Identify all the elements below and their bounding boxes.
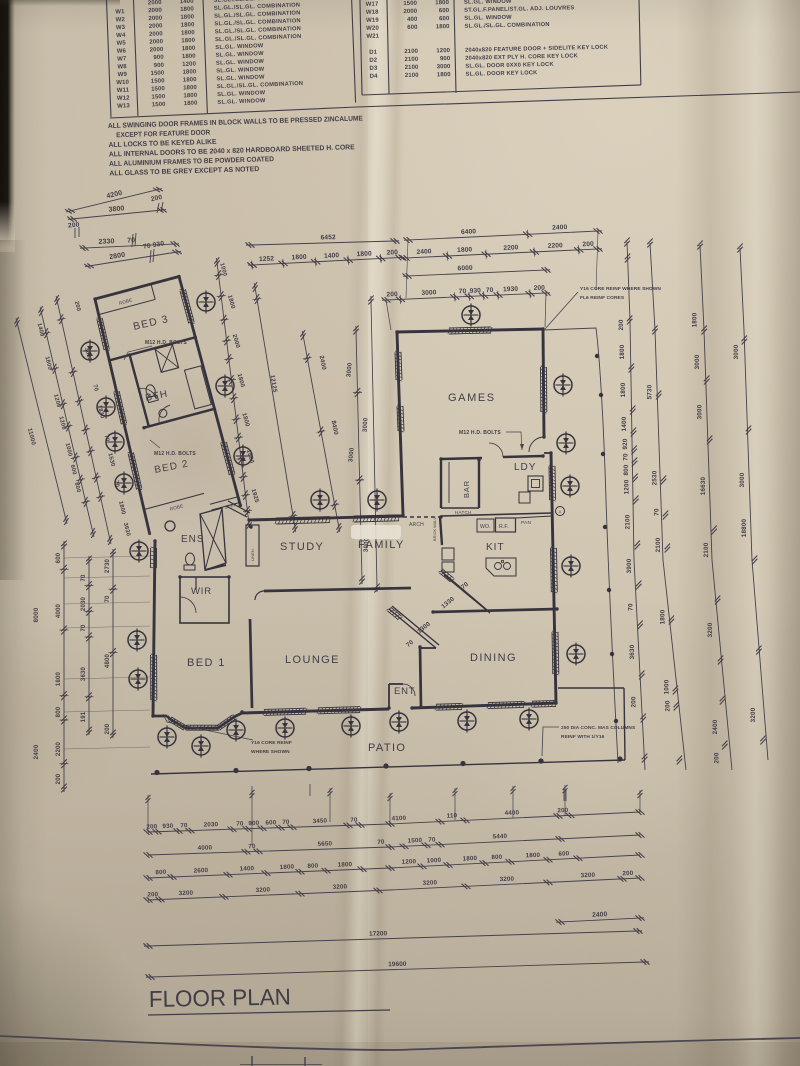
svg-text:W13: W13 bbox=[117, 103, 130, 110]
svg-text:2000: 2000 bbox=[148, 0, 163, 6]
svg-text:FL6 REINF CORES: FL6 REINF CORES bbox=[580, 295, 625, 301]
svg-text:600: 600 bbox=[558, 850, 570, 857]
svg-text:3000: 3000 bbox=[739, 472, 746, 487]
svg-text:800: 800 bbox=[155, 869, 167, 876]
svg-text:1000: 1000 bbox=[663, 679, 670, 694]
svg-text:1800: 1800 bbox=[659, 609, 666, 624]
svg-text:W6: W6 bbox=[117, 48, 127, 54]
svg-text:600: 600 bbox=[69, 464, 77, 475]
svg-text:2000: 2000 bbox=[150, 47, 165, 54]
svg-text:ENS: ENS bbox=[181, 534, 205, 545]
svg-text:1200: 1200 bbox=[402, 858, 417, 866]
svg-text:D2: D2 bbox=[369, 58, 378, 64]
svg-text:SL.GL./SL.GL. COMBINATION: SL.GL./SL.GL. COMBINATION bbox=[217, 81, 304, 90]
svg-text:STUDY: STUDY bbox=[280, 541, 324, 553]
svg-text:SL.GL. WINDOW: SL.GL. WINDOW bbox=[216, 67, 265, 75]
svg-text:2800: 2800 bbox=[109, 252, 126, 261]
svg-text:900: 900 bbox=[440, 56, 451, 62]
svg-text:1500: 1500 bbox=[150, 70, 165, 77]
svg-text:200: 200 bbox=[534, 285, 546, 292]
svg-text:1800: 1800 bbox=[182, 46, 197, 53]
svg-text:W7: W7 bbox=[117, 56, 127, 62]
svg-text:M12 H.D. BOLTS: M12 H.D. BOLTS bbox=[154, 451, 196, 457]
svg-text:SL.GL. WINDOW: SL.GL. WINDOW bbox=[217, 90, 266, 98]
svg-text:70: 70 bbox=[236, 820, 244, 827]
svg-text:1500: 1500 bbox=[151, 78, 166, 85]
svg-text:HATCH: HATCH bbox=[455, 510, 471, 515]
svg-text:1800: 1800 bbox=[240, 412, 250, 428]
svg-text:1400: 1400 bbox=[324, 252, 340, 260]
svg-text:SL.GL. DOOR 0XX0 KEY LOCK: SL.GL. DOOR 0XX0 KEY LOCK bbox=[465, 62, 554, 70]
svg-text:70: 70 bbox=[622, 453, 629, 461]
svg-text:1330: 1330 bbox=[440, 595, 456, 610]
svg-text:3630: 3630 bbox=[122, 522, 131, 537]
svg-text:SL.GL. WINDOW: SL.GL. WINDOW bbox=[216, 59, 265, 67]
svg-text:70: 70 bbox=[459, 288, 467, 295]
svg-text:2100: 2100 bbox=[405, 73, 419, 79]
svg-text:D3: D3 bbox=[369, 66, 378, 72]
svg-text:ROBE: ROBE bbox=[169, 503, 184, 511]
svg-text:W17: W17 bbox=[366, 2, 379, 8]
svg-text:ROBE: ROBE bbox=[118, 297, 133, 305]
svg-text:BED 3: BED 3 bbox=[132, 313, 170, 333]
svg-text:A: A bbox=[559, 510, 562, 514]
svg-text:1400: 1400 bbox=[180, 0, 195, 5]
svg-text:4000: 4000 bbox=[198, 844, 213, 852]
svg-text:1800: 1800 bbox=[619, 344, 626, 359]
svg-text:SL.GL./SL.GL. COMBINATION: SL.GL./SL.GL. COMBINATION bbox=[213, 0, 300, 4]
svg-text:1800: 1800 bbox=[183, 77, 198, 84]
svg-text:W18: W18 bbox=[366, 10, 379, 16]
svg-text:70 930: 70 930 bbox=[143, 240, 165, 250]
svg-text:2000: 2000 bbox=[148, 16, 163, 23]
svg-text:W9: W9 bbox=[118, 72, 128, 78]
svg-text:SL.GL. WINDOW: SL.GL. WINDOW bbox=[216, 75, 265, 83]
svg-text:3200: 3200 bbox=[333, 883, 348, 891]
svg-text:920: 920 bbox=[622, 438, 629, 449]
svg-text:1252: 1252 bbox=[259, 255, 275, 263]
svg-text:70: 70 bbox=[460, 581, 470, 591]
svg-text:1800: 1800 bbox=[436, 24, 450, 30]
svg-text:3000: 3000 bbox=[362, 417, 370, 432]
svg-text:W10: W10 bbox=[116, 80, 129, 87]
svg-text:SL.GL./SL.GL. COMBINATION: SL.GL./SL.GL. COMBINATION bbox=[214, 2, 301, 11]
svg-text:1800: 1800 bbox=[620, 382, 627, 397]
svg-text:BED 2: BED 2 bbox=[153, 458, 189, 475]
svg-text:SL.GL./SL.GL. COMBINATION: SL.GL./SL.GL. COMBINATION bbox=[214, 10, 301, 19]
svg-text:ALL GLASS TO BE GREY EXCEPT AS: ALL GLASS TO BE GREY EXCEPT AS NOTED bbox=[109, 166, 259, 177]
svg-text:110: 110 bbox=[447, 812, 458, 819]
svg-text:2330: 2330 bbox=[98, 238, 114, 246]
svg-text:LOUNGE: LOUNGE bbox=[285, 654, 340, 666]
svg-text:1800: 1800 bbox=[437, 72, 451, 78]
svg-text:70: 70 bbox=[127, 237, 135, 244]
svg-text:Y16 CORE REINF WHERE SHOWN: Y16 CORE REINF WHERE SHOWN bbox=[580, 286, 661, 292]
svg-text:SL.GL. WINDOW: SL.GL. WINDOW bbox=[216, 51, 265, 59]
svg-text:2030: 2030 bbox=[81, 596, 87, 611]
svg-text:900: 900 bbox=[153, 55, 164, 61]
svg-text:LINEN: LINEN bbox=[251, 549, 255, 561]
svg-text:1400: 1400 bbox=[240, 865, 255, 873]
svg-text:KIT: KIT bbox=[486, 542, 505, 553]
svg-text:SL.GL./SL.GL. COMBINATION: SL.GL./SL.GL. COMBINATION bbox=[464, 22, 549, 30]
svg-text:3800: 3800 bbox=[108, 205, 125, 214]
svg-text:3000: 3000 bbox=[437, 64, 451, 70]
svg-text:200: 200 bbox=[386, 249, 398, 257]
svg-text:SL.GL./SL.GL. COMBINATION: SL.GL./SL.GL. COMBINATION bbox=[215, 34, 302, 43]
svg-text:17200: 17200 bbox=[369, 930, 388, 938]
svg-text:BED 1: BED 1 bbox=[187, 657, 226, 669]
svg-text:1800: 1800 bbox=[280, 864, 295, 872]
svg-text:4800: 4800 bbox=[105, 653, 111, 668]
svg-text:1800: 1800 bbox=[338, 861, 353, 869]
svg-text:GAMES: GAMES bbox=[448, 392, 496, 404]
svg-text:2400: 2400 bbox=[33, 744, 40, 759]
svg-text:200: 200 bbox=[664, 700, 671, 711]
svg-text:1500: 1500 bbox=[151, 94, 166, 101]
svg-text:BTH: BTH bbox=[144, 389, 169, 404]
svg-text:LDY: LDY bbox=[514, 462, 536, 473]
svg-text:19600: 19600 bbox=[388, 961, 407, 969]
svg-text:3630: 3630 bbox=[81, 666, 87, 681]
svg-text:1800: 1800 bbox=[56, 671, 62, 686]
svg-text:1000: 1000 bbox=[64, 442, 73, 457]
svg-text:1800: 1800 bbox=[291, 254, 307, 262]
svg-text:1200: 1200 bbox=[57, 416, 66, 431]
svg-text:3000: 3000 bbox=[421, 289, 437, 297]
svg-text:200: 200 bbox=[713, 752, 720, 763]
svg-text:1400: 1400 bbox=[36, 323, 45, 338]
svg-text:200: 200 bbox=[105, 723, 111, 734]
svg-text:2100: 2100 bbox=[405, 65, 419, 71]
svg-text:1800: 1800 bbox=[181, 22, 196, 29]
svg-text:11000: 11000 bbox=[26, 428, 36, 447]
svg-text:930: 930 bbox=[470, 287, 482, 294]
svg-text:930: 930 bbox=[162, 823, 174, 830]
svg-text:1800: 1800 bbox=[435, 0, 449, 6]
svg-text:200: 200 bbox=[557, 807, 569, 814]
svg-text:1800: 1800 bbox=[183, 85, 198, 92]
svg-text:SL.GL. WINDOW: SL.GL. WINDOW bbox=[464, 0, 512, 6]
svg-text:ALL ALUMINIUM FRAMES TO BE POW: ALL ALUMINIUM FRAMES TO BE POWDER COATED bbox=[109, 156, 274, 168]
svg-text:2040x820 EXT PLY H. CORE KEY L: 2040x820 EXT PLY H. CORE KEY LOCK bbox=[465, 53, 579, 61]
svg-text:ALL LOCKS TO BE KEYED ALIKE: ALL LOCKS TO BE KEYED ALIKE bbox=[108, 139, 216, 149]
svg-text:W11: W11 bbox=[117, 88, 130, 94]
svg-text:70: 70 bbox=[81, 574, 87, 582]
svg-text:3200: 3200 bbox=[581, 872, 596, 880]
svg-text:800: 800 bbox=[623, 464, 630, 475]
svg-text:250 DIA CONC. MAS COLUMNS: 250 DIA CONC. MAS COLUMNS bbox=[561, 725, 636, 731]
svg-text:1800: 1800 bbox=[245, 449, 255, 465]
svg-text:70: 70 bbox=[627, 603, 634, 611]
svg-text:6452: 6452 bbox=[321, 234, 336, 241]
svg-text:70: 70 bbox=[91, 384, 98, 392]
svg-text:16630: 16630 bbox=[700, 476, 707, 495]
svg-text:FLOOR PLAN: FLOOR PLAN bbox=[149, 984, 291, 1012]
svg-text:FAMILY: FAMILY bbox=[358, 539, 405, 551]
svg-text:W21: W21 bbox=[366, 34, 379, 40]
svg-text:3200: 3200 bbox=[256, 886, 271, 894]
svg-text:1000: 1000 bbox=[218, 262, 227, 277]
svg-text:5440: 5440 bbox=[493, 833, 508, 841]
svg-text:3200: 3200 bbox=[707, 622, 714, 637]
svg-text:2400: 2400 bbox=[318, 355, 328, 371]
svg-text:200: 200 bbox=[622, 870, 634, 877]
svg-text:18800: 18800 bbox=[741, 518, 748, 537]
svg-text:2100: 2100 bbox=[625, 514, 632, 529]
svg-text:1800: 1800 bbox=[180, 14, 195, 21]
svg-text:5650: 5650 bbox=[318, 840, 333, 848]
svg-text:1800: 1800 bbox=[181, 38, 196, 45]
svg-text:2400: 2400 bbox=[712, 719, 719, 734]
svg-text:600: 600 bbox=[407, 25, 418, 31]
svg-text:1930: 1930 bbox=[503, 286, 519, 294]
svg-text:5730: 5730 bbox=[647, 384, 654, 399]
svg-text:900: 900 bbox=[248, 820, 260, 827]
svg-text:1800: 1800 bbox=[526, 852, 541, 860]
svg-text:2000: 2000 bbox=[149, 31, 164, 38]
svg-text:D4: D4 bbox=[370, 74, 379, 80]
svg-text:PATIO: PATIO bbox=[368, 742, 406, 754]
svg-text:70: 70 bbox=[377, 839, 385, 846]
svg-text:Y16 CORE REINF: Y16 CORE REINF bbox=[251, 740, 292, 746]
svg-text:200: 200 bbox=[582, 241, 594, 249]
svg-text:4000: 4000 bbox=[56, 603, 62, 618]
svg-text:SL.GL. WINDOW: SL.GL. WINDOW bbox=[215, 43, 264, 51]
svg-text:SL.GL. DOOR KEY LOCK: SL.GL. DOOR KEY LOCK bbox=[466, 70, 539, 78]
svg-text:W3: W3 bbox=[116, 25, 126, 31]
svg-text:2530: 2530 bbox=[651, 470, 658, 485]
svg-text:1800: 1800 bbox=[117, 501, 126, 516]
svg-text:W4: W4 bbox=[116, 33, 126, 39]
svg-text:1800: 1800 bbox=[463, 855, 478, 863]
svg-text:SL.GL. WINDOW: SL.GL. WINDOW bbox=[217, 98, 266, 106]
svg-text:3200: 3200 bbox=[179, 890, 194, 898]
svg-text:200: 200 bbox=[150, 194, 163, 203]
svg-text:200: 200 bbox=[68, 221, 80, 229]
svg-text:1800: 1800 bbox=[182, 54, 197, 61]
svg-text:12125: 12125 bbox=[268, 375, 277, 394]
svg-text:70: 70 bbox=[113, 480, 120, 488]
svg-text:200: 200 bbox=[147, 891, 159, 898]
svg-text:600: 600 bbox=[56, 552, 62, 563]
svg-text:1800: 1800 bbox=[43, 356, 52, 371]
svg-text:3000: 3000 bbox=[347, 447, 355, 462]
svg-text:2400: 2400 bbox=[416, 248, 432, 256]
svg-text:STEP: STEP bbox=[224, 502, 237, 510]
svg-text:3000: 3000 bbox=[696, 404, 703, 419]
svg-text:2100: 2100 bbox=[703, 542, 710, 557]
svg-text:ARCH: ARCH bbox=[409, 522, 424, 528]
svg-text:W8: W8 bbox=[117, 64, 127, 70]
svg-text:800: 800 bbox=[491, 854, 503, 861]
svg-text:REINF WITH 1/Y16: REINF WITH 1/Y16 bbox=[561, 734, 605, 740]
svg-text:SL.GL./SL.GL. COMBINATION: SL.GL./SL.GL. COMBINATION bbox=[215, 26, 302, 35]
svg-text:1800: 1800 bbox=[236, 373, 246, 389]
svg-text:2200: 2200 bbox=[56, 741, 62, 756]
svg-text:70: 70 bbox=[180, 822, 188, 829]
svg-text:1800: 1800 bbox=[226, 294, 236, 310]
svg-text:70: 70 bbox=[103, 434, 110, 442]
svg-text:2040x820 FEATURE DOOR + SIDELI: 2040x820 FEATURE DOOR + SIDELITE KEY LOC… bbox=[465, 45, 609, 54]
svg-text:SL.GL./SL.GL. COMBINATION: SL.GL./SL.GL. COMBINATION bbox=[214, 18, 301, 27]
svg-text:3450: 3450 bbox=[313, 818, 328, 826]
svg-text:2400: 2400 bbox=[592, 911, 608, 919]
svg-text:1800: 1800 bbox=[183, 93, 198, 100]
svg-text:4400: 4400 bbox=[505, 809, 520, 817]
svg-text:3900: 3900 bbox=[626, 558, 633, 573]
svg-text:200: 200 bbox=[56, 773, 62, 784]
svg-text:PAN: PAN bbox=[521, 520, 531, 526]
svg-text:1800: 1800 bbox=[457, 246, 473, 254]
svg-text:M12 H.D. BOLTS: M12 H.D. BOLTS bbox=[145, 340, 187, 346]
svg-text:2000: 2000 bbox=[403, 9, 417, 15]
svg-text:DINING: DINING bbox=[470, 652, 517, 664]
svg-text:2100: 2100 bbox=[404, 57, 418, 63]
svg-text:1300: 1300 bbox=[416, 620, 432, 635]
svg-text:1500: 1500 bbox=[408, 837, 423, 845]
svg-text:2730: 2730 bbox=[105, 558, 111, 573]
svg-text:6400: 6400 bbox=[461, 228, 477, 236]
svg-text:3200: 3200 bbox=[423, 879, 438, 887]
svg-text:WIR: WIR bbox=[191, 586, 212, 597]
svg-text:70: 70 bbox=[428, 836, 436, 843]
svg-text:200: 200 bbox=[618, 319, 625, 330]
svg-text:BAR: BAR bbox=[462, 480, 471, 498]
svg-text:WHERE SHOWN: WHERE SHOWN bbox=[251, 749, 290, 755]
svg-text:W12: W12 bbox=[117, 95, 130, 102]
svg-text:600: 600 bbox=[439, 8, 450, 14]
svg-text:1500: 1500 bbox=[151, 86, 166, 93]
svg-text:3630: 3630 bbox=[83, 347, 92, 362]
svg-text:600: 600 bbox=[265, 819, 277, 826]
svg-text:70: 70 bbox=[282, 819, 290, 826]
svg-text:70: 70 bbox=[248, 843, 256, 850]
svg-text:6000: 6000 bbox=[457, 265, 473, 273]
svg-text:2200: 2200 bbox=[503, 244, 519, 252]
svg-text:1830: 1830 bbox=[96, 405, 105, 420]
svg-text:ST.GL.F.PANEL/ST.GL. ADJ. LOUV: ST.GL.F.PANEL/ST.GL. ADJ. LOUVRES bbox=[464, 5, 574, 13]
svg-text:70: 70 bbox=[105, 595, 111, 603]
svg-text:1800: 1800 bbox=[184, 101, 199, 108]
svg-text:1530: 1530 bbox=[106, 453, 115, 468]
svg-text:1000: 1000 bbox=[427, 857, 442, 865]
svg-text:191: 191 bbox=[81, 711, 87, 722]
svg-text:1200: 1200 bbox=[436, 48, 450, 54]
svg-text:EXCEPT FOR FEATURE DOOR: EXCEPT FOR FEATURE DOOR bbox=[116, 129, 210, 139]
svg-text:900: 900 bbox=[154, 63, 165, 69]
svg-text:W19: W19 bbox=[366, 18, 379, 24]
svg-text:R.F.: R.F. bbox=[499, 524, 509, 530]
svg-text:8400: 8400 bbox=[330, 420, 340, 436]
svg-text:70: 70 bbox=[653, 508, 660, 516]
svg-text:3630: 3630 bbox=[629, 644, 636, 659]
svg-text:2200: 2200 bbox=[548, 242, 564, 250]
svg-text:70: 70 bbox=[350, 817, 358, 824]
svg-text:1200: 1200 bbox=[52, 394, 61, 409]
svg-text:2000: 2000 bbox=[148, 8, 163, 15]
svg-text:1800: 1800 bbox=[181, 30, 196, 37]
svg-text:1800: 1800 bbox=[357, 250, 373, 258]
svg-text:M12 H.D. BOLTS: M12 H.D. BOLTS bbox=[459, 430, 501, 436]
svg-text:200: 200 bbox=[386, 291, 398, 298]
svg-text:2000: 2000 bbox=[149, 23, 164, 30]
svg-text:ENT: ENT bbox=[394, 686, 415, 697]
svg-text:1400: 1400 bbox=[621, 416, 628, 431]
svg-text:1800: 1800 bbox=[692, 312, 699, 327]
svg-text:70: 70 bbox=[81, 624, 87, 632]
svg-text:4200: 4200 bbox=[106, 190, 123, 201]
svg-text:2100: 2100 bbox=[655, 537, 662, 552]
svg-text:SL.GL. WINDOW: SL.GL. WINDOW bbox=[464, 15, 512, 22]
svg-text:1800: 1800 bbox=[182, 69, 197, 76]
svg-text:400: 400 bbox=[407, 17, 418, 23]
svg-text:W2: W2 bbox=[116, 17, 126, 23]
svg-text:D1: D1 bbox=[369, 50, 378, 56]
svg-text:2000: 2000 bbox=[231, 334, 241, 350]
svg-text:W1: W1 bbox=[115, 9, 125, 15]
svg-text:200: 200 bbox=[631, 696, 638, 707]
svg-text:W20: W20 bbox=[366, 26, 379, 32]
svg-text:WO.: WO. bbox=[480, 524, 491, 530]
svg-text:70: 70 bbox=[405, 639, 415, 649]
svg-text:3000: 3000 bbox=[345, 362, 353, 377]
svg-text:ALL SWINGING DOOR FRAMES IN BL: ALL SWINGING DOOR FRAMES IN BLOCK WALLS … bbox=[108, 115, 363, 130]
svg-text:200: 200 bbox=[146, 823, 158, 830]
svg-text:1500: 1500 bbox=[152, 102, 167, 109]
svg-text:3000: 3000 bbox=[694, 354, 701, 369]
svg-text:1925: 1925 bbox=[250, 488, 260, 504]
svg-text:3200: 3200 bbox=[500, 876, 515, 884]
svg-text:1800: 1800 bbox=[180, 6, 195, 13]
svg-text:1200: 1200 bbox=[623, 479, 630, 494]
svg-text:8000: 8000 bbox=[33, 607, 40, 622]
svg-text:800: 800 bbox=[56, 706, 62, 717]
svg-text:3000: 3000 bbox=[363, 537, 371, 552]
svg-text:2600: 2600 bbox=[194, 867, 209, 875]
svg-text:3000: 3000 bbox=[733, 344, 740, 359]
svg-text:2400: 2400 bbox=[552, 224, 568, 232]
svg-text:1200: 1200 bbox=[182, 61, 197, 68]
svg-text:600: 600 bbox=[439, 16, 450, 22]
svg-text:2000: 2000 bbox=[149, 39, 164, 46]
svg-text:800: 800 bbox=[307, 862, 319, 869]
svg-text:3200: 3200 bbox=[750, 707, 757, 722]
svg-text:200: 200 bbox=[73, 301, 81, 312]
svg-text:2100: 2100 bbox=[404, 49, 418, 55]
svg-text:BRICK WALL: BRICK WALL bbox=[433, 517, 437, 541]
svg-text:ALL INTERNAL DOORS TO BE 2040: ALL INTERNAL DOORS TO BE 2040 x 820 HARD… bbox=[109, 144, 355, 158]
svg-text:1500: 1500 bbox=[403, 1, 417, 7]
svg-text:4100: 4100 bbox=[392, 815, 407, 823]
svg-text:800: 800 bbox=[73, 482, 81, 493]
svg-text:W5: W5 bbox=[116, 41, 126, 47]
svg-text:2030: 2030 bbox=[204, 821, 219, 829]
svg-text:70: 70 bbox=[486, 287, 494, 294]
